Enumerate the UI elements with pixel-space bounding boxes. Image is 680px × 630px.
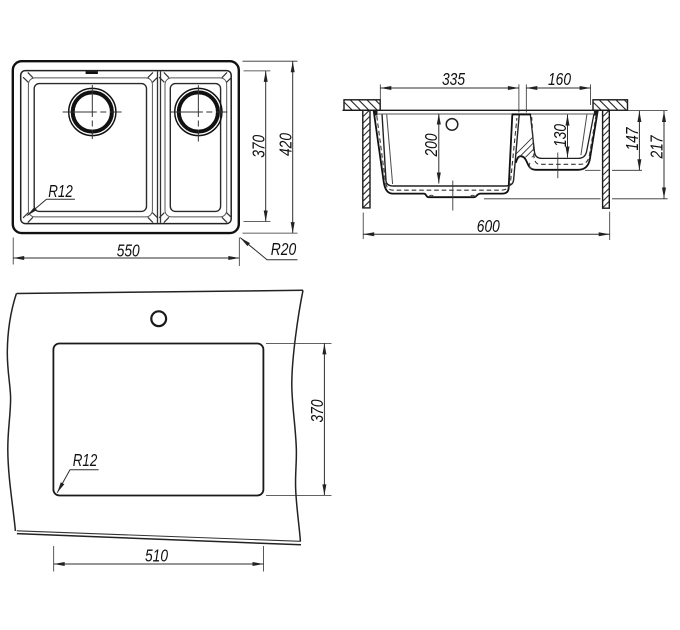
svg-text:160: 160 — [548, 69, 571, 89]
svg-text:130: 130 — [550, 124, 570, 147]
svg-text:R12: R12 — [73, 450, 98, 470]
svg-text:370: 370 — [249, 135, 269, 158]
svg-text:370: 370 — [307, 399, 327, 422]
svg-text:R12: R12 — [48, 181, 73, 201]
svg-text:420: 420 — [275, 133, 295, 156]
svg-text:217: 217 — [647, 135, 667, 160]
svg-text:600: 600 — [477, 216, 500, 236]
svg-text:335: 335 — [442, 69, 465, 89]
svg-text:147: 147 — [622, 127, 642, 151]
svg-text:510: 510 — [145, 546, 168, 566]
svg-text:R20: R20 — [271, 239, 297, 259]
svg-text:550: 550 — [117, 241, 140, 261]
svg-text:200: 200 — [421, 133, 441, 157]
